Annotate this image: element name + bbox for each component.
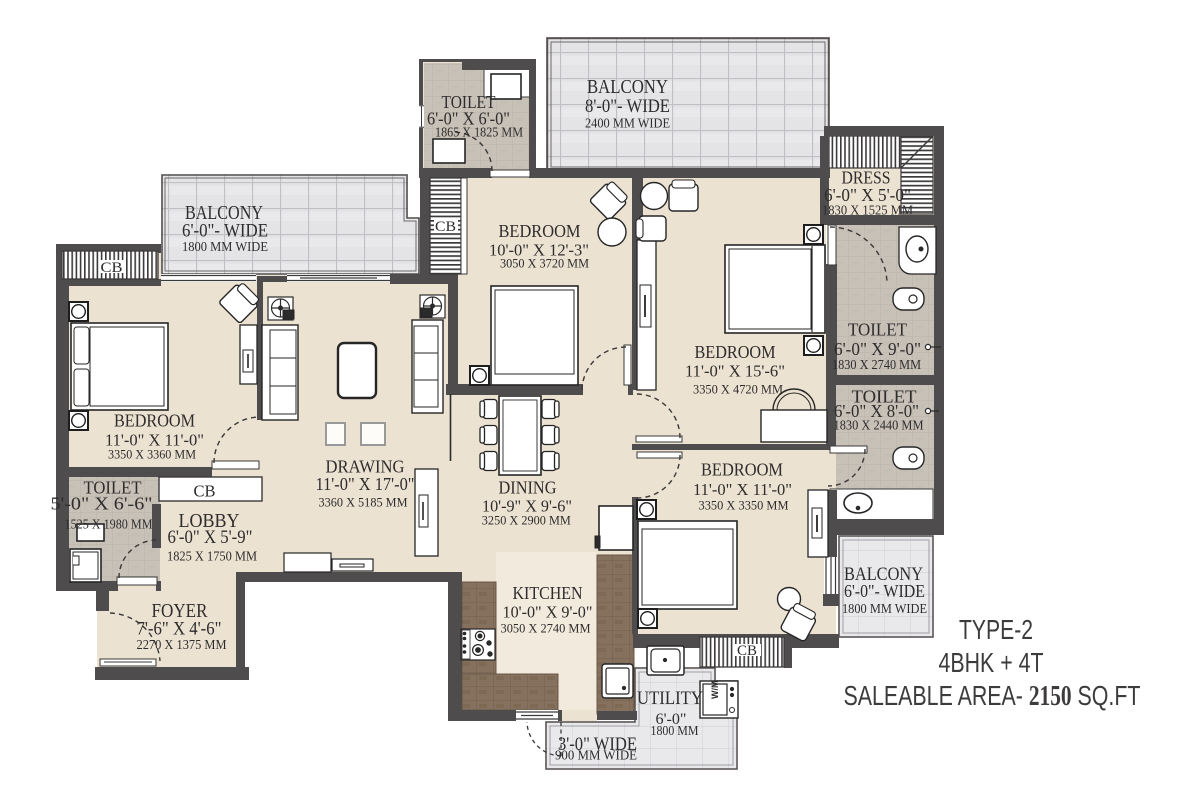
svg-text:CB: CB [194,482,216,501]
svg-text:11'-0" X 11'-0": 11'-0" X 11'-0" [693,480,792,499]
svg-text:W/M: W/M [710,681,720,700]
svg-text:CB: CB [435,219,456,235]
svg-text:1800 MM: 1800 MM [651,723,699,738]
svg-text:BEDROOM: BEDROOM [701,460,783,480]
svg-text:1830 X 1525 MM: 1830 X 1525 MM [822,203,913,218]
svg-text:BALCONY: BALCONY [587,76,668,98]
svg-text:1825 X 1750 MM: 1825 X 1750 MM [167,550,257,565]
svg-text:3360 X 5185 MM: 3360 X 5185 MM [319,495,408,510]
svg-text:1800 MM WIDE: 1800 MM WIDE [182,240,268,255]
svg-text:3050 X 3720 MM: 3050 X 3720 MM [500,256,589,271]
svg-text:11'-0" X 17'-0": 11'-0" X 17'-0" [316,474,415,494]
svg-text:BEDROOM: BEDROOM [695,342,776,362]
svg-text:3350 X 4720 MM: 3350 X 4720 MM [693,382,783,397]
svg-text:6'-0" X 5'-9": 6'-0" X 5'-9" [168,527,253,548]
svg-text:3350 X 3350 MM: 3350 X 3350 MM [699,498,789,513]
svg-text:8'-0"- WIDE: 8'-0"- WIDE [585,96,670,117]
svg-text:1830 X 2740 MM: 1830 X 2740 MM [832,357,921,372]
svg-text:CB: CB [101,260,123,276]
svg-text:6'-0"- WIDE: 6'-0"- WIDE [844,581,925,601]
svg-text:SALEABLE AREA- 2150 SQ.FT: SALEABLE AREA- 2150 SQ.FT [844,680,1141,712]
svg-text:900 MM WIDE: 900 MM WIDE [555,748,637,763]
svg-text:11'-0" X 15'-6": 11'-0" X 15'-6" [685,362,785,381]
svg-text:UTILITY: UTILITY [637,688,703,709]
svg-text:3250 X 2900 MM: 3250 X 2900 MM [482,513,571,528]
svg-text:1830 X 2440 MM: 1830 X 2440 MM [834,418,924,433]
svg-text:10'-0" X 9'-0": 10'-0" X 9'-0" [503,603,593,622]
svg-text:2270 X 1375 MM: 2270 X 1375 MM [137,638,227,653]
svg-text:TYPE-2: TYPE-2 [959,614,1033,645]
svg-text:4BHK + 4T: 4BHK + 4T [939,647,1044,678]
svg-text:TOILET: TOILET [848,320,907,340]
svg-text:2400 MM WIDE: 2400 MM WIDE [585,117,670,132]
svg-text:CB: CB [737,643,757,659]
svg-text:1800 MM WIDE: 1800 MM WIDE [842,601,927,616]
svg-text:BEDROOM: BEDROOM [499,221,581,241]
svg-text:BEDROOM: BEDROOM [114,411,195,431]
svg-text:1525 X 1980 MM: 1525 X 1980 MM [65,517,153,532]
svg-text:6'-0"- WIDE: 6'-0"- WIDE [182,221,268,242]
svg-text:3050 X 2740 MM: 3050 X 2740 MM [501,621,591,636]
svg-text:3350 X 3360 MM: 3350 X 3360 MM [108,447,196,462]
svg-text:KITCHEN: KITCHEN [513,583,583,603]
svg-text:7'-6" X 4'-6": 7'-6" X 4'-6" [137,619,222,640]
svg-text:1865 X 1825 MM: 1865 X 1825 MM [435,125,523,140]
svg-text:5'-0" X 6'-6": 5'-0" X 6'-6" [51,494,153,514]
svg-text:6'-0" X 9'-0": 6'-0" X 9'-0" [834,339,921,359]
svg-text:DINING: DINING [499,478,557,498]
